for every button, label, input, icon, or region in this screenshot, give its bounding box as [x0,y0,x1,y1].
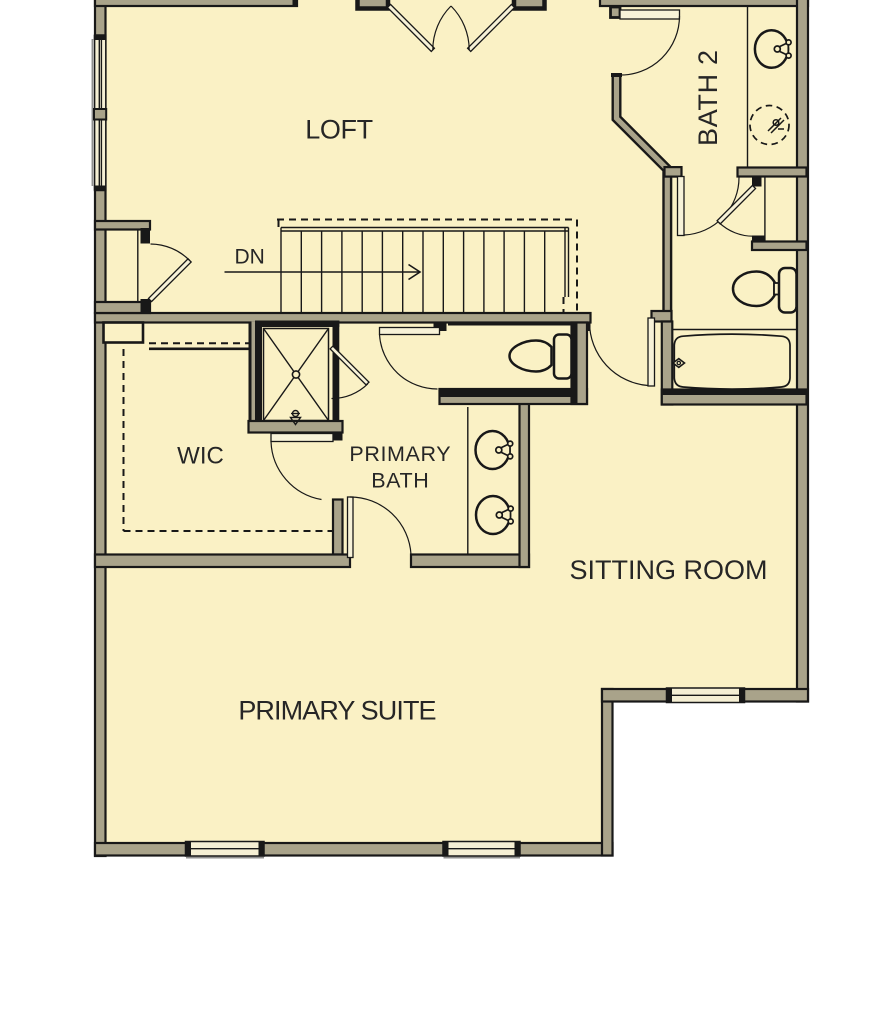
svg-text:PRIMARY SUITE: PRIMARY SUITE [238,696,435,726]
svg-text:SITTING ROOM: SITTING ROOM [570,555,768,585]
svg-text:BATH: BATH [371,468,429,492]
svg-text:WIC: WIC [177,443,224,470]
svg-text:DN: DN [235,246,265,269]
svg-text:BATH 2: BATH 2 [693,49,723,146]
svg-text:LOFT: LOFT [305,115,372,145]
svg-text:PRIMARY: PRIMARY [349,442,451,466]
